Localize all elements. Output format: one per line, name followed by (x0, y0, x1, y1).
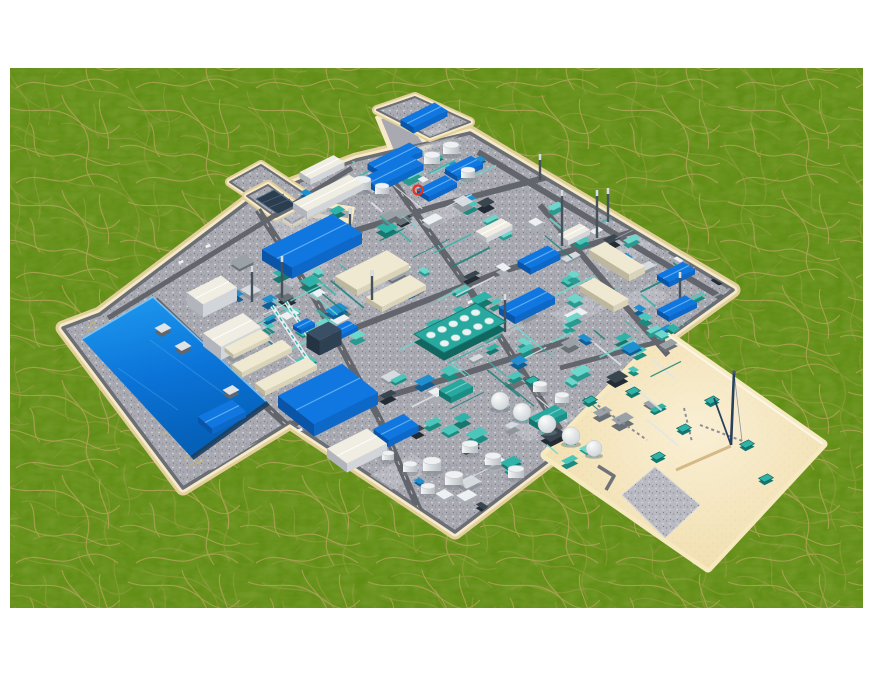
industrial-plant-render (0, 0, 880, 680)
storage-tank (461, 440, 480, 457)
storage-tank (381, 451, 396, 464)
storage-tank (374, 183, 391, 198)
storage-tank (402, 461, 419, 476)
storage-tank (420, 483, 437, 498)
storage-tank (484, 452, 503, 469)
spherical-tank (585, 440, 603, 458)
storage-tank (423, 151, 442, 168)
storage-tank (507, 465, 526, 482)
storage-tank (460, 167, 477, 182)
plant-aerial-scene (0, 0, 880, 680)
storage-tank (442, 141, 461, 158)
spherical-tank (537, 415, 557, 436)
storage-tank (444, 471, 465, 490)
storage-tank (532, 381, 549, 396)
spherical-tank (490, 392, 510, 413)
storage-tank (422, 457, 443, 476)
spherical-tank (561, 427, 581, 448)
storage-tank (554, 392, 571, 407)
